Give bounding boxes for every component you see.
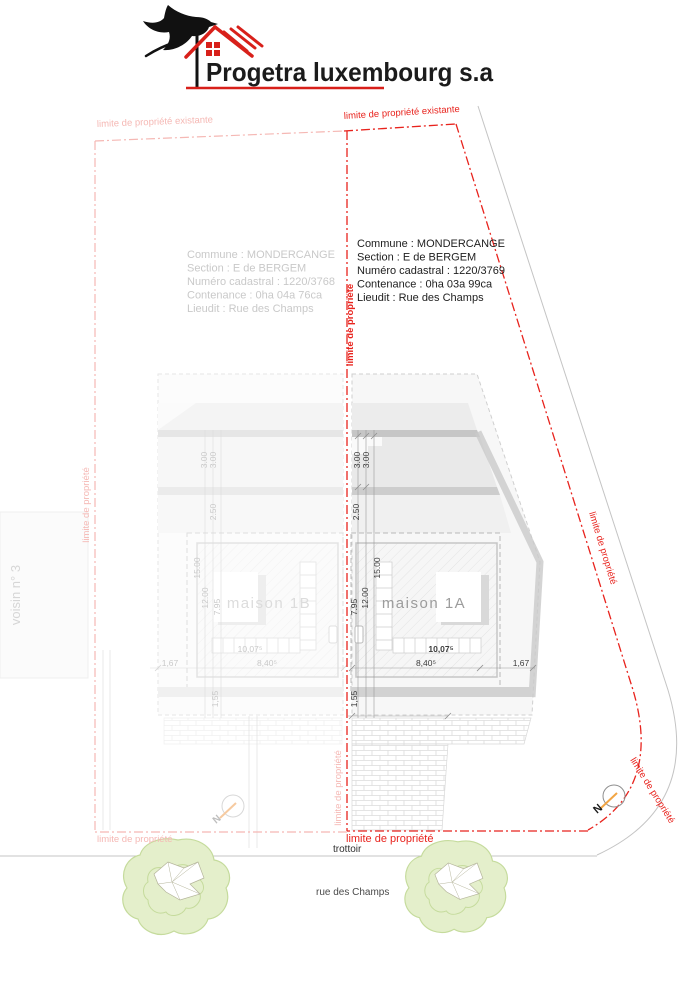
dim-1b: 1,55 (210, 690, 220, 707)
dim-1b: 10,07⁵ (238, 644, 263, 654)
dim-1a: 3.00 (361, 451, 371, 468)
logo: Progetra luxembourg s.a (143, 5, 493, 88)
boundary-top-right (344, 124, 456, 131)
boundary-label: limite de propriété (346, 833, 433, 845)
boundary-label: limite de propriété (333, 750, 344, 826)
boundary-top-left (95, 131, 344, 141)
north-compass-faint: N (211, 795, 244, 826)
dim-1b: 15.00 (192, 557, 202, 579)
dim-1b: 3.00 (208, 451, 218, 468)
parcel-left-line: Contenance : 0ha 04a 76ca (187, 290, 323, 302)
road-label: rue des Champs (316, 887, 389, 898)
parcel-right-line: Section : E de BERGEM (357, 252, 476, 264)
dim-1a: 7.95 (349, 598, 359, 615)
neighbor-parcel: voisin n° 3 (0, 512, 88, 678)
site-plan-drawing: Progetra luxembourg s.a voisin n° 3 (0, 0, 700, 990)
dim-1b: 12.00 (200, 587, 210, 609)
dim-1a: 12.00 (360, 587, 370, 609)
sidewalk-label: trottoir (333, 844, 362, 855)
dim-1b: 7.95 (212, 598, 222, 615)
dim-1b: 1,67 (162, 658, 179, 668)
dim-1a: 15.00 (372, 557, 382, 579)
door-1b (329, 626, 337, 643)
dim-1a: 1,67 (513, 658, 530, 668)
site-plan-page: Progetra luxembourg s.a voisin n° 3 (0, 0, 700, 990)
dim-1a: 8,40⁵ (416, 658, 436, 668)
door-1a (355, 626, 363, 643)
house-1b-label: maison 1B (227, 595, 311, 612)
parcel-right-line: Lieudit : Rue des Champs (357, 292, 484, 304)
north-label: N (591, 802, 605, 816)
dim-1a: 1,55 (349, 690, 359, 707)
parcel-right-line: Numéro cadastral : 1220/3769 (357, 265, 505, 277)
dim-1a: 10,07⁵ (428, 644, 453, 654)
house-1a-plan: maison 1A 3.00 3.00 2.50 15.00 12.00 7.9… (348, 374, 540, 830)
tree-icon (123, 839, 230, 935)
boundary-label: limite de propriété existante (97, 115, 214, 130)
dim-1a: 2.50 (351, 503, 361, 520)
north-compass: N (591, 785, 625, 816)
company-name: Progetra luxembourg s.a (206, 57, 493, 87)
boundary-label: limite de propriété (81, 467, 92, 543)
parcel-info-right: Commune : MONDERCANGE Section : E de BER… (357, 238, 505, 304)
parcel-left-line: Section : E de BERGEM (187, 263, 306, 275)
parcel-left-line: Numéro cadastral : 1220/3768 (187, 276, 335, 288)
boundary-label: limite de propriété (97, 834, 173, 845)
parcel-info-left: Commune : MONDERCANGE Section : E de BER… (187, 249, 335, 315)
boundary-label: limite de propriété (345, 284, 356, 366)
dim-1b: 8,40⁵ (257, 658, 277, 668)
parcel-left-line: Commune : MONDERCANGE (187, 249, 335, 261)
dim-1b: 2.50 (208, 503, 218, 520)
tree-icon (405, 841, 508, 933)
parcel-right-line: Contenance : 0ha 03a 99ca (357, 279, 493, 291)
house-1a-label: maison 1A (382, 595, 466, 612)
parcel-right-line: Commune : MONDERCANGE (357, 238, 505, 250)
brick-apron-1a (352, 718, 531, 744)
window-icon (206, 42, 220, 56)
neighbor-label: voisin n° 3 (8, 565, 23, 625)
parcel-left-line: Lieudit : Rue des Champs (187, 303, 314, 315)
house-1b-plan: maison 1B 3.00 3.00 2.50 15.00 12.00 7.9… (103, 374, 347, 848)
driveway-1a (352, 744, 448, 830)
boundary-label: limite de propriété existante (344, 104, 461, 122)
